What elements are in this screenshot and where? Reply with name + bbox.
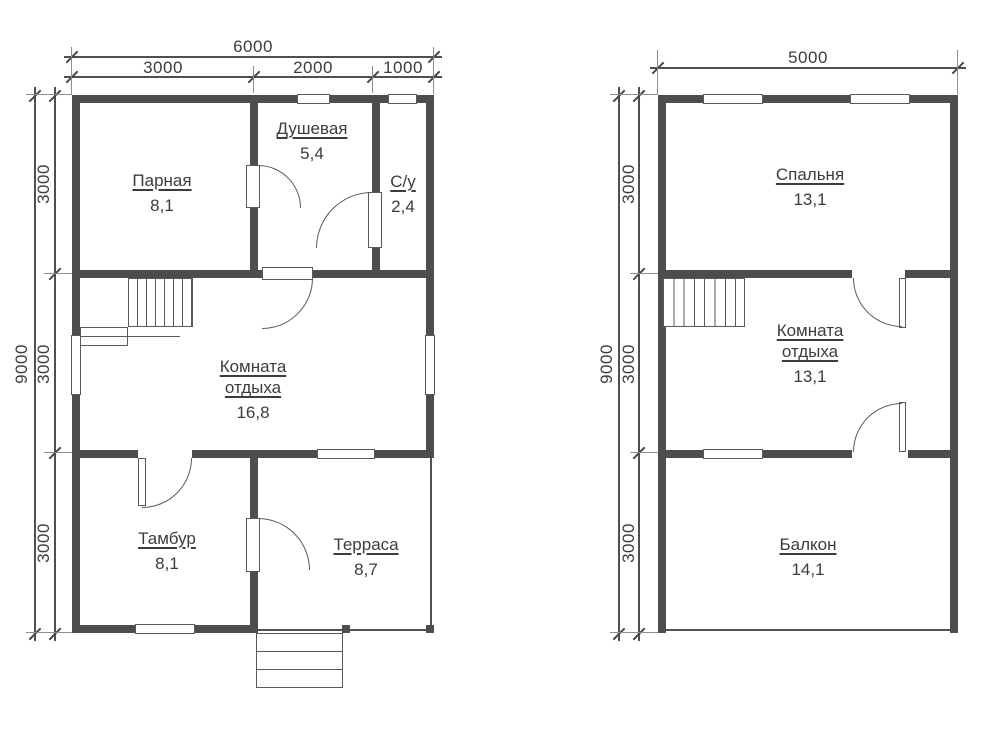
room-label-spalnya: Спальня 13,1 (776, 164, 844, 210)
room-name: Тамбур (138, 528, 196, 549)
stair-treads (663, 278, 745, 327)
room-area: 5,4 (277, 143, 348, 164)
extension-line (957, 50, 958, 94)
dim-total-height-label: 9000 (597, 344, 617, 384)
room-name: Терраса (333, 534, 398, 555)
floor-plan-sheet: 6000 3000 2000 1000 9000 3000 3000 3000 (0, 0, 1000, 750)
room-area: 8,1 (138, 553, 196, 574)
window (317, 449, 375, 459)
dimension-line (54, 87, 56, 641)
room-name: Балкон (779, 534, 836, 555)
wall-segment (950, 95, 958, 633)
room-name: Спальня (776, 164, 844, 185)
room-name: Душевая (277, 118, 348, 139)
window (135, 624, 195, 634)
extension-line (26, 94, 72, 95)
room-label-dushevaya: Душевая 5,4 (277, 118, 348, 164)
room-name: Комната отдыха (754, 320, 866, 362)
window (425, 335, 435, 395)
room-label-tambur: Тамбур 8,1 (138, 528, 196, 574)
room-area: 16,8 (197, 402, 309, 423)
extension-line (71, 47, 72, 94)
extension-line (44, 273, 72, 274)
extension-line (253, 66, 254, 93)
extension-line (657, 50, 658, 94)
extension-line (630, 273, 658, 274)
stair-landing-line (80, 336, 128, 337)
room-label-parnaya: Парная 8,1 (132, 170, 191, 216)
door-swing-arc (316, 192, 372, 248)
dim-total-width-label: 6000 (233, 37, 273, 57)
door-opening (852, 270, 905, 278)
door-opening (138, 450, 192, 458)
extension-line (44, 452, 72, 453)
room-area: 14,1 (779, 559, 836, 580)
dim-total-width-label: 5000 (788, 48, 828, 68)
stair-landing-line (128, 336, 180, 337)
window (703, 94, 763, 104)
wall-segment (658, 95, 666, 633)
window (297, 94, 330, 104)
room-name: Комната отдыха (197, 356, 309, 398)
terrace-edge-line (430, 458, 432, 631)
balcony-edge-line (666, 629, 950, 631)
window (388, 94, 417, 104)
step-line (256, 669, 343, 670)
dim-segment-label: 3000 (34, 344, 54, 384)
room-name: С/у (390, 171, 416, 192)
room-label-terrasa: Терраса 8,7 (333, 534, 398, 580)
door-swing-arc (258, 518, 310, 570)
dim-segment-label: 2000 (293, 58, 333, 78)
extension-line (26, 632, 72, 633)
extension-line (610, 632, 658, 633)
door-swing-arc (258, 165, 301, 208)
room-name: Парная (132, 170, 191, 191)
step-line (256, 651, 343, 652)
extension-line (433, 47, 434, 94)
dim-segment-label: 3000 (34, 164, 54, 204)
dim-segment-label: 3000 (34, 523, 54, 563)
dim-segment-label: 1000 (383, 58, 423, 78)
dim-segment-label: 3000 (143, 58, 183, 78)
exterior-steps (256, 633, 343, 688)
room-area: 13,1 (754, 366, 866, 387)
room-area: 2,4 (390, 196, 416, 217)
wall-segment (72, 95, 434, 103)
wall-segment (658, 270, 958, 278)
dim-segment-label: 3000 (619, 344, 639, 384)
room-area: 8,1 (132, 195, 191, 216)
extension-line (630, 452, 658, 453)
door-swing-arc (142, 458, 192, 508)
room-label-su: С/у 2,4 (390, 171, 416, 217)
terrace-post (426, 625, 434, 633)
extension-line (372, 66, 373, 93)
room-label-komnata-otdyha: Комната отдыха 13,1 (754, 320, 866, 387)
wall-segment (72, 270, 434, 278)
dim-segment-label: 3000 (619, 523, 639, 563)
wall-segment (72, 450, 434, 458)
room-area: 13,1 (776, 189, 844, 210)
terrace-post (342, 625, 350, 633)
room-area: 8,7 (333, 559, 398, 580)
door-swing-arc (853, 403, 902, 452)
room-label-komnata-otdyha: Комната отдыха 16,8 (197, 356, 309, 423)
window (703, 449, 763, 459)
extension-line (610, 94, 658, 95)
dim-total-height-label: 9000 (12, 344, 32, 384)
stair-treads (128, 278, 193, 327)
dim-segment-label: 3000 (619, 164, 639, 204)
door-swing-arc (262, 278, 313, 329)
window (850, 94, 910, 104)
room-label-balkon: Балкон 14,1 (779, 534, 836, 580)
